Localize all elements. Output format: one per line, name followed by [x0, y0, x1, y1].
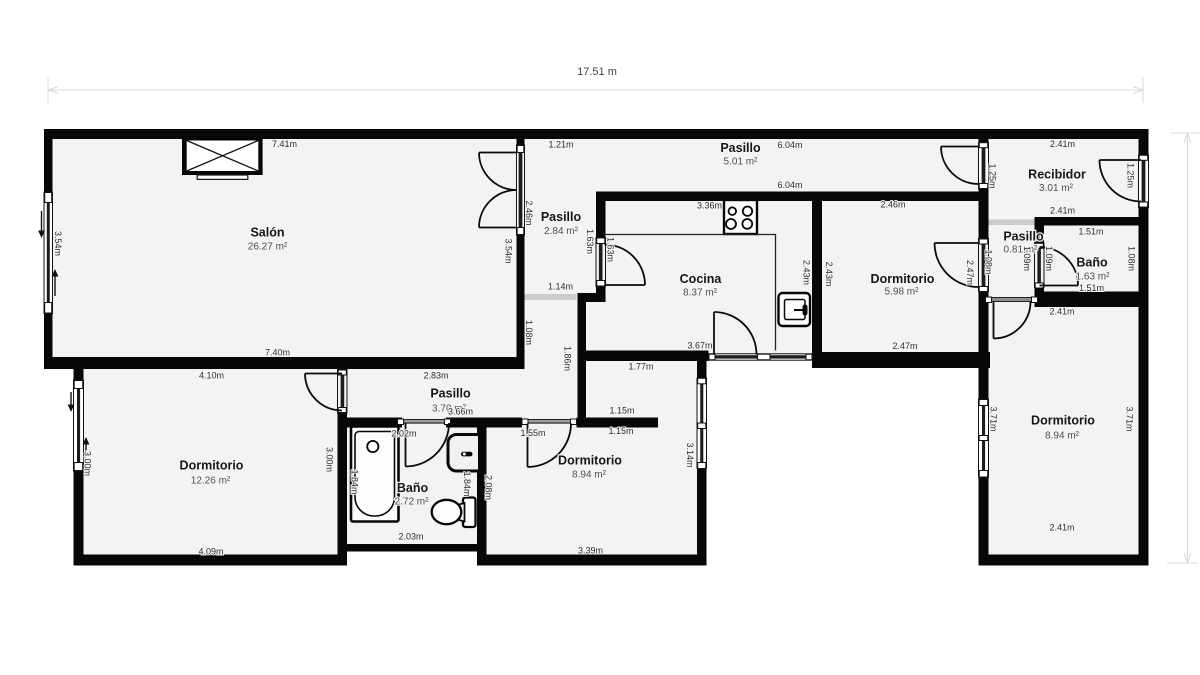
svg-text:1.84m: 1.84m — [462, 471, 472, 496]
svg-text:5.98 m²: 5.98 m² — [885, 287, 920, 298]
svg-text:1.08m: 1.08m — [524, 320, 534, 345]
svg-text:6.04m: 6.04m — [777, 140, 802, 150]
svg-text:1.09m: 1.09m — [1044, 246, 1054, 271]
svg-text:Baño: Baño — [1076, 256, 1108, 270]
svg-text:1.09m: 1.09m — [1022, 246, 1032, 271]
svg-text:2.47m: 2.47m — [892, 341, 917, 351]
svg-text:Pasillo: Pasillo — [430, 387, 471, 401]
svg-text:3.00m: 3.00m — [83, 451, 93, 476]
svg-text:Pasillo: Pasillo — [541, 210, 582, 224]
svg-text:2.08m: 2.08m — [484, 475, 494, 500]
svg-text:7.41m: 7.41m — [272, 139, 297, 149]
svg-text:2.43m: 2.43m — [802, 260, 812, 285]
svg-text:1.63m: 1.63m — [606, 237, 616, 262]
svg-text:1.25m: 1.25m — [988, 163, 998, 188]
svg-text:1.86m: 1.86m — [563, 346, 573, 371]
svg-text:2.46m: 2.46m — [880, 200, 905, 210]
svg-text:1.51m: 1.51m — [1079, 283, 1104, 293]
svg-text:Pasillo: Pasillo — [720, 141, 761, 155]
svg-text:1.21m: 1.21m — [548, 140, 573, 150]
svg-text:6.04m: 6.04m — [777, 180, 802, 190]
svg-text:1.55m: 1.55m — [520, 428, 545, 438]
svg-text:2.03m: 2.03m — [398, 532, 423, 542]
svg-text:3.01 m²: 3.01 m² — [1039, 183, 1074, 194]
svg-text:Pasillo: Pasillo — [1003, 230, 1044, 244]
svg-text:1.14m: 1.14m — [548, 282, 573, 292]
svg-text:1.84m: 1.84m — [350, 469, 360, 494]
svg-text:3.14m: 3.14m — [685, 442, 695, 467]
svg-text:8.94 m²: 8.94 m² — [1045, 431, 1080, 442]
svg-text:Dormitorio: Dormitorio — [558, 454, 622, 468]
svg-text:2.41m: 2.41m — [1049, 523, 1074, 533]
svg-text:Recibidor: Recibidor — [1028, 168, 1086, 182]
svg-text:1.63m: 1.63m — [585, 229, 595, 254]
svg-text:2.84 m²: 2.84 m² — [544, 226, 579, 237]
svg-text:Cocina: Cocina — [680, 272, 723, 286]
svg-text:7.40m: 7.40m — [265, 348, 290, 358]
svg-text:2.41m: 2.41m — [1050, 206, 1075, 216]
svg-text:Dormitorio: Dormitorio — [180, 459, 244, 473]
svg-text:3.00m: 3.00m — [325, 447, 335, 472]
svg-text:8.37 m²: 8.37 m² — [683, 288, 718, 299]
svg-text:2.41m: 2.41m — [1050, 139, 1075, 149]
svg-text:4.10m: 4.10m — [199, 371, 224, 381]
svg-text:3.39m: 3.39m — [578, 546, 603, 556]
svg-text:3.54m: 3.54m — [504, 238, 514, 263]
svg-text:1.15m: 1.15m — [609, 406, 634, 416]
svg-text:2.47m: 2.47m — [965, 260, 975, 285]
svg-text:1.77m: 1.77m — [628, 362, 653, 372]
svg-text:Dormitorio: Dormitorio — [871, 272, 935, 286]
svg-text:3.71m: 3.71m — [989, 406, 999, 431]
svg-text:2.41m: 2.41m — [1049, 307, 1074, 317]
svg-text:2.83m: 2.83m — [423, 371, 448, 381]
svg-text:3.36m: 3.36m — [697, 201, 722, 211]
svg-text:1.08m: 1.08m — [984, 249, 994, 274]
svg-text:1.25m: 1.25m — [1126, 163, 1136, 188]
svg-text:1.08m: 1.08m — [1127, 246, 1137, 271]
svg-text:17.51 m: 17.51 m — [577, 66, 617, 78]
svg-text:3.54m: 3.54m — [53, 231, 63, 256]
svg-text:2.72 m²: 2.72 m² — [395, 497, 430, 508]
svg-text:Dormitorio: Dormitorio — [1031, 414, 1095, 428]
svg-text:2.46m: 2.46m — [524, 200, 534, 225]
svg-text:3.71m: 3.71m — [1125, 406, 1135, 431]
svg-text:1.63 m²: 1.63 m² — [1076, 272, 1111, 283]
svg-text:2.02m: 2.02m — [391, 429, 416, 439]
svg-text:3.66m: 3.66m — [448, 407, 473, 417]
svg-text:26.27 m²: 26.27 m² — [248, 242, 288, 253]
svg-text:4.09m: 4.09m — [198, 547, 223, 557]
svg-text:1.51m: 1.51m — [1078, 227, 1103, 237]
svg-text:Baño: Baño — [397, 481, 429, 495]
svg-text:1.15m: 1.15m — [608, 426, 633, 436]
svg-text:8.94 m²: 8.94 m² — [572, 470, 607, 481]
svg-text:5.01 m²: 5.01 m² — [724, 157, 759, 168]
svg-text:12.26 m²: 12.26 m² — [191, 476, 231, 487]
svg-text:Salón: Salón — [250, 226, 284, 240]
svg-text:3.67m: 3.67m — [687, 341, 712, 351]
svg-text:2.43m: 2.43m — [824, 261, 834, 286]
